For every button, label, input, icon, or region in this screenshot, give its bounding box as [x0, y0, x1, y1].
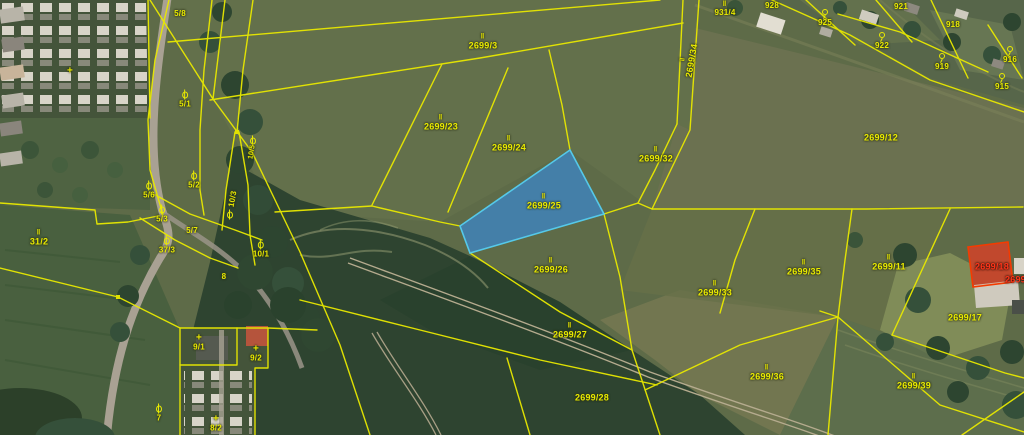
cadastral-map-viewport[interactable]: ‖2699/3 ‖2699/23 ‖2699/24 ‖2699/32 ‖2699…	[0, 0, 1024, 435]
aerial-map-canvas	[0, 0, 1024, 435]
building-parcel-outline[interactable]	[968, 242, 1013, 287]
